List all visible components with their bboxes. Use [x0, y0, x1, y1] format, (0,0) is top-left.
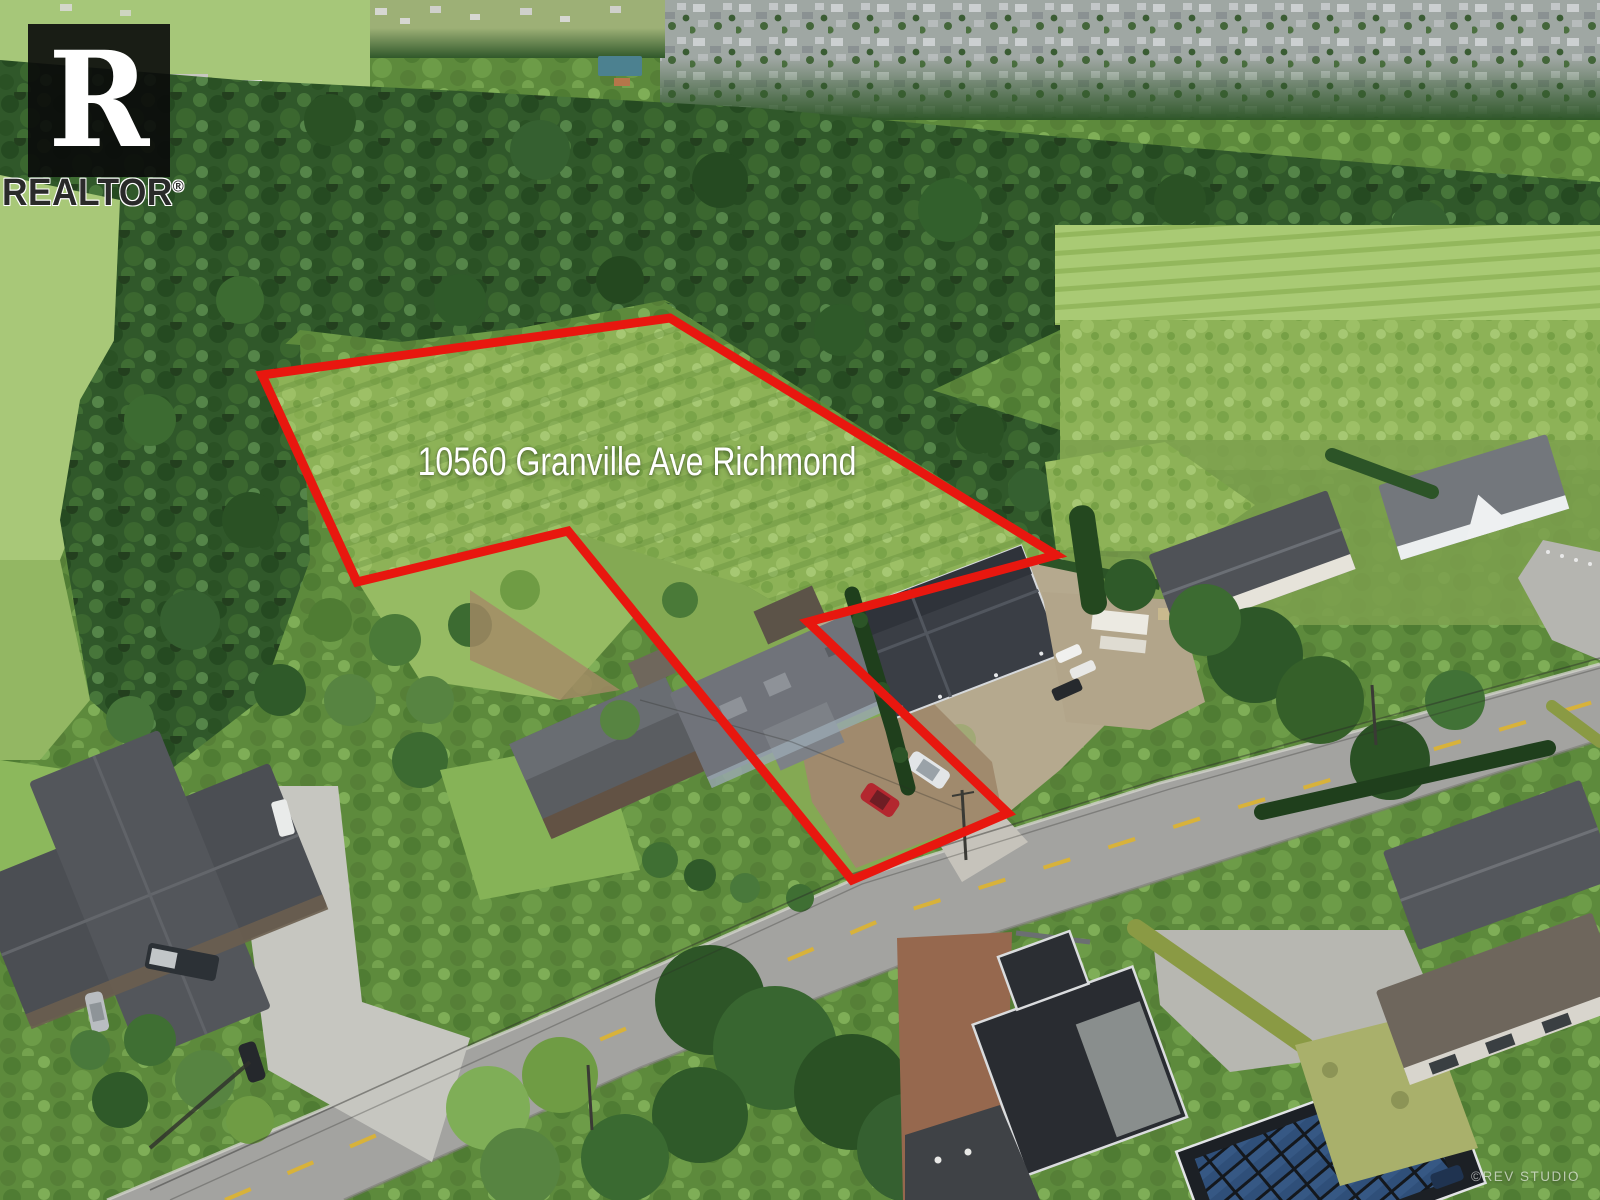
address-overlay-text: 10560 Granville Ave Richmond [418, 440, 857, 485]
realtor-logo: R [28, 24, 170, 177]
aerial-photo: R REALTOR® 10560 Granville Ave Richmond … [0, 0, 1600, 1200]
blue-roof-building [598, 56, 642, 76]
realtor-wordmark: REALTOR® [2, 172, 184, 215]
photographer-watermark: ©REV STUDIO [1471, 1169, 1580, 1184]
realtor-logo-letter: R [49, 35, 150, 167]
aerial-scene [0, 0, 1600, 1200]
east-farm-rows [1055, 225, 1600, 325]
registered-trademark-symbol: ® [173, 178, 184, 195]
